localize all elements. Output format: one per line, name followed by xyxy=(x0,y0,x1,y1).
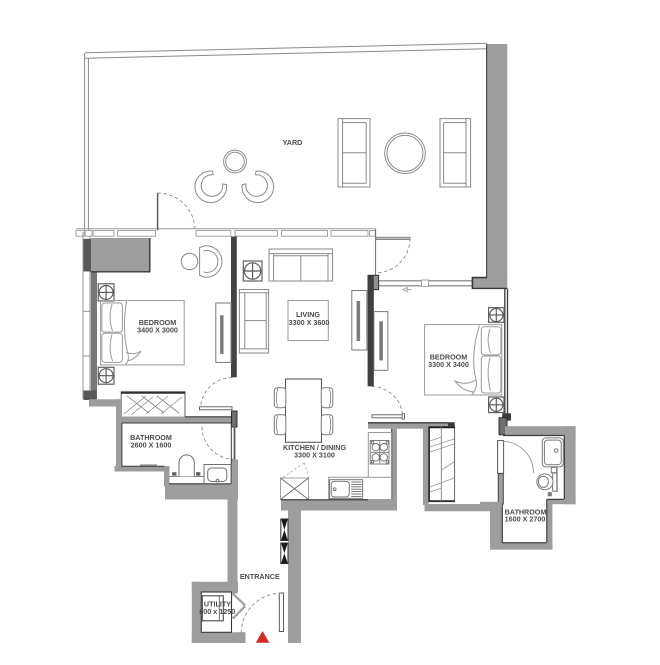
svg-text:800 x 1250: 800 x 1250 xyxy=(199,607,235,616)
svg-text:3300 X 3400: 3300 X 3400 xyxy=(428,360,469,369)
svg-text:YARD: YARD xyxy=(283,138,303,147)
svg-text:1600 X 2700: 1600 X 2700 xyxy=(505,515,546,524)
svg-text:2600 X 1600: 2600 X 1600 xyxy=(131,440,172,449)
svg-text:3300 X 3100: 3300 X 3100 xyxy=(294,451,335,460)
svg-text:3300 X 3600: 3300 X 3600 xyxy=(289,318,330,327)
svg-text:ENTRANCE: ENTRANCE xyxy=(240,572,280,581)
svg-text:3400 X 3000: 3400 X 3000 xyxy=(137,325,178,334)
